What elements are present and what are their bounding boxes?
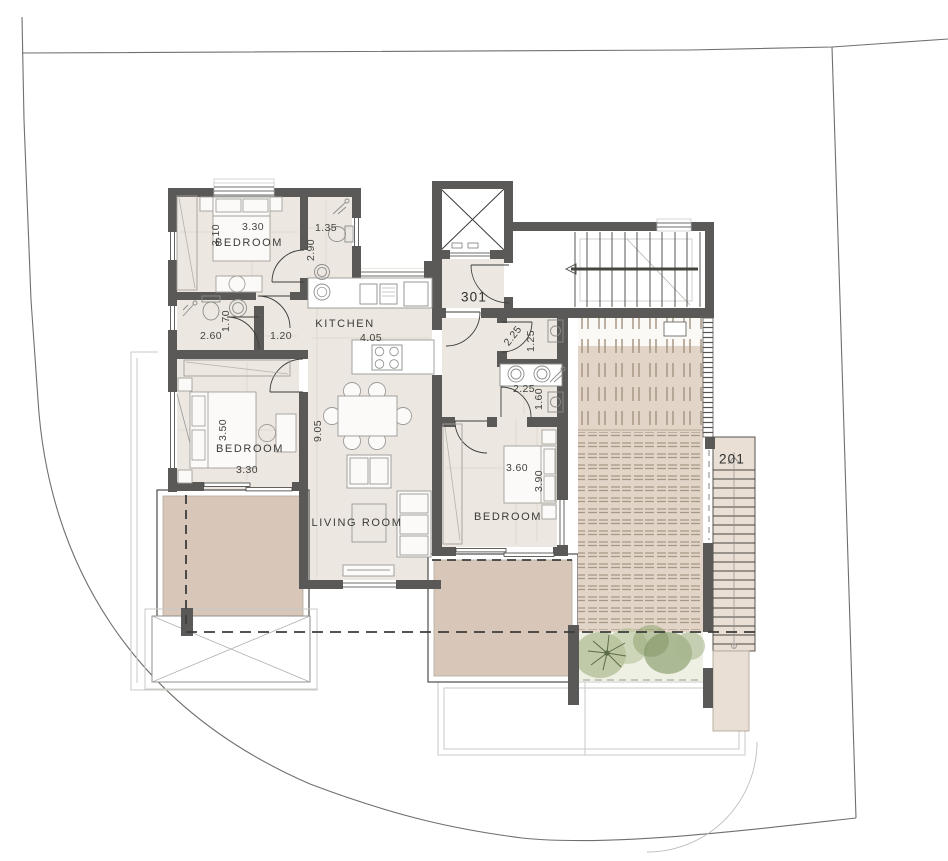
nightstand	[269, 197, 282, 211]
desk	[276, 414, 296, 452]
floor-plan: BEDROOM 3.30 3.10 1.35 2.90 2.60 1.70 1.…	[0, 0, 948, 861]
planter-trees	[574, 625, 705, 681]
balcony-bottom	[428, 554, 578, 682]
nightstand	[178, 470, 192, 483]
floor-plan-drawing	[0, 0, 948, 861]
nightstand	[178, 378, 192, 391]
elevator-shaft	[441, 189, 504, 250]
terrace-deck	[578, 318, 713, 632]
dining-table	[338, 396, 397, 436]
tv-console	[343, 565, 394, 576]
balcony-left	[157, 490, 309, 628]
nightstand	[542, 430, 556, 444]
external-staircase	[713, 437, 755, 731]
nightstand	[200, 197, 213, 211]
dresser	[216, 276, 262, 292]
open-to-below	[145, 609, 317, 689]
nightstand	[542, 505, 556, 519]
main-staircase	[514, 231, 705, 308]
